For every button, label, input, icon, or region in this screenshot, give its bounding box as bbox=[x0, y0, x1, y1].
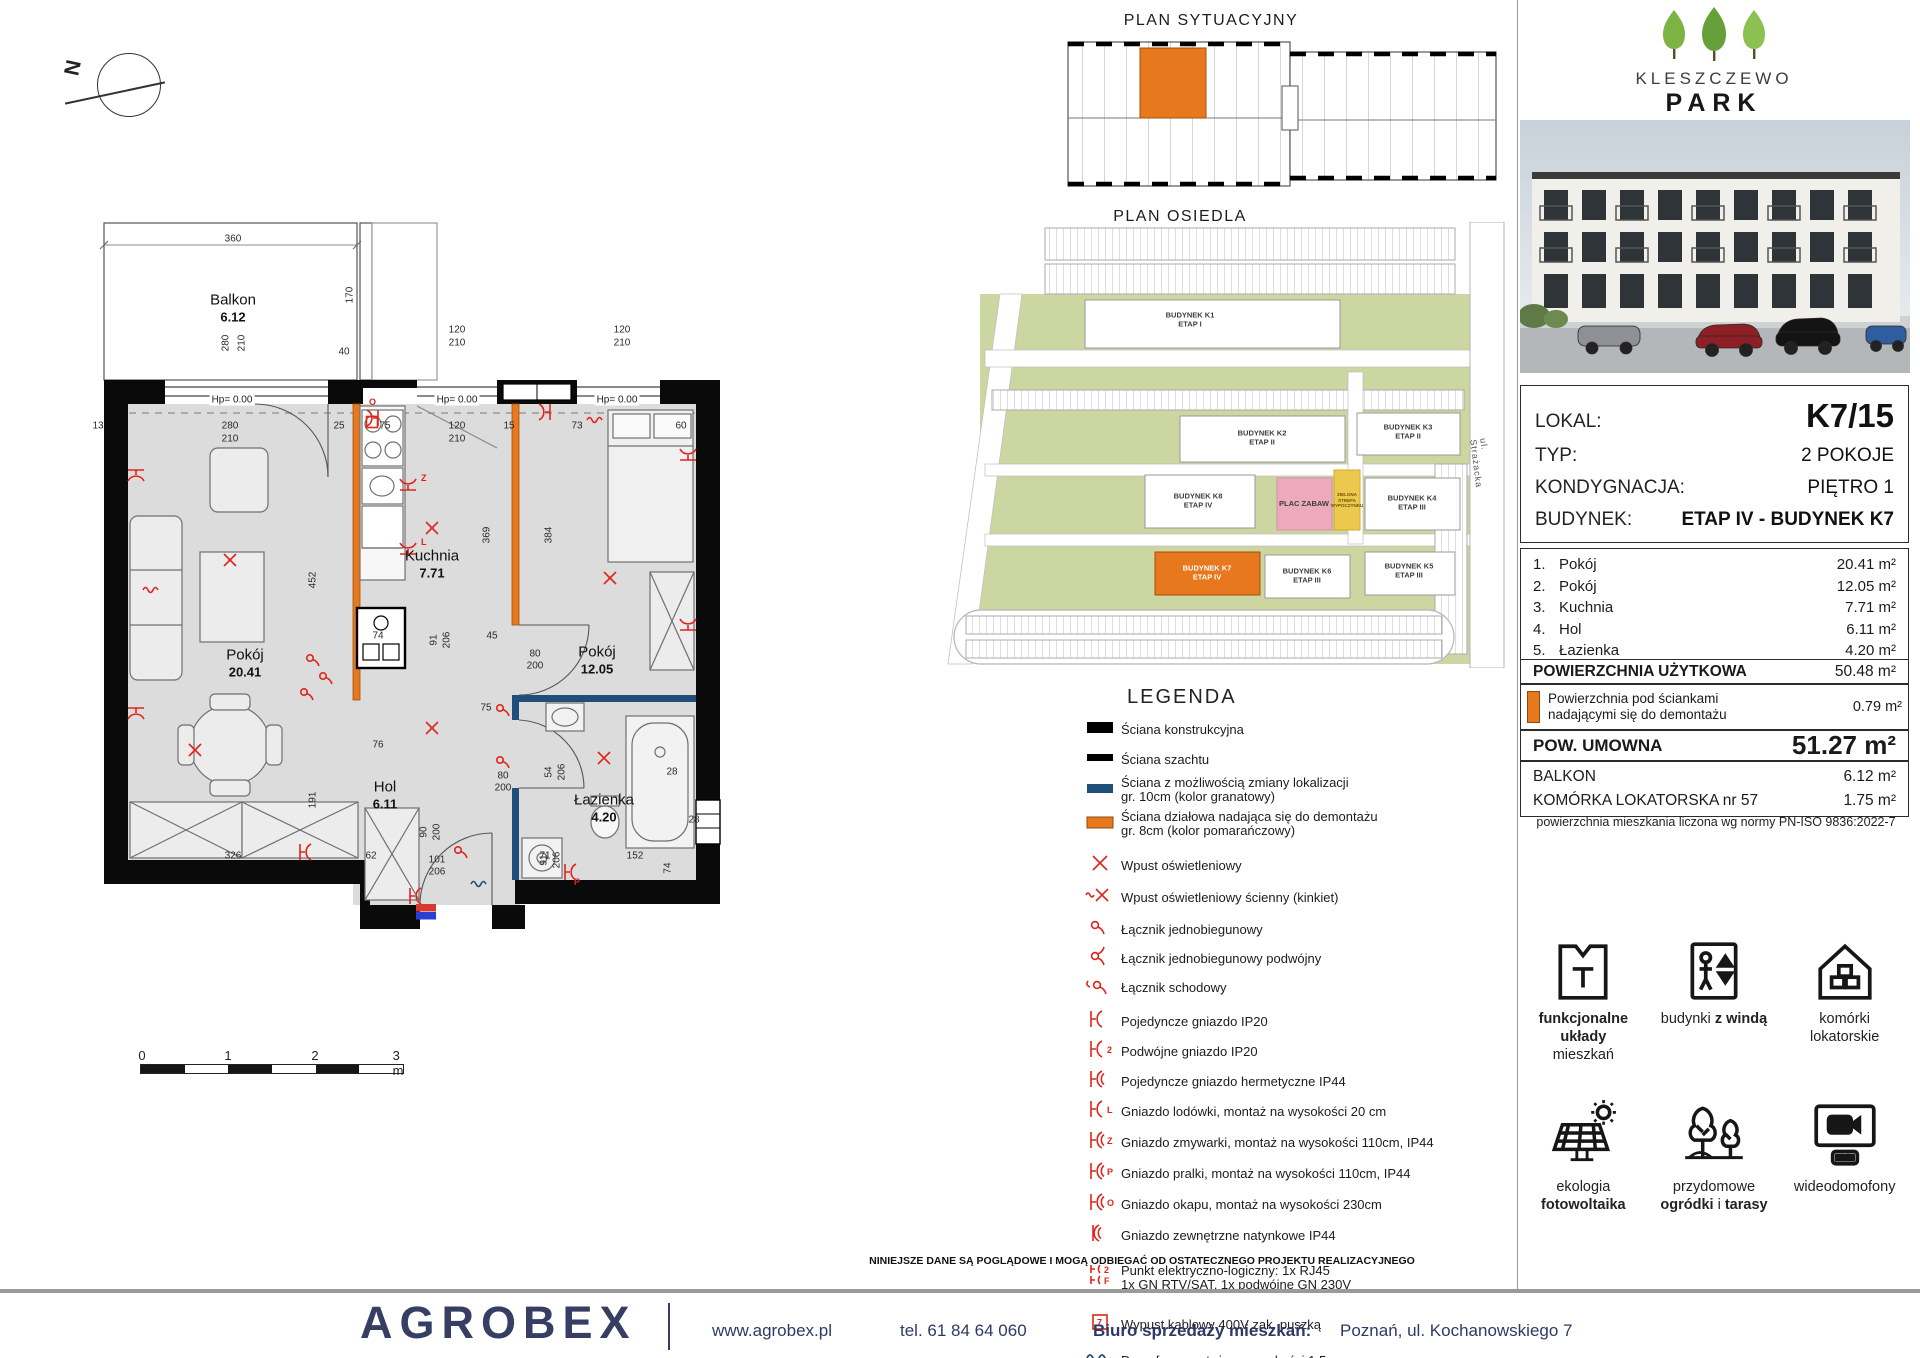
orange-wall-marker-icon bbox=[1527, 691, 1540, 723]
info-label: LOKAL: bbox=[1535, 411, 1602, 433]
info-label: KONDYGNACJA: bbox=[1535, 477, 1685, 499]
feature-icons: funkcjonalne układymieszkań budynki z wi… bbox=[1518, 938, 1910, 1214]
svg-text:L: L bbox=[1107, 1105, 1113, 1115]
legend-item-label: Ściana z możliwością zmiany lokalizacjig… bbox=[1121, 776, 1349, 804]
feature-label: przydomoweogródki i tarasy bbox=[1660, 1178, 1767, 1214]
info-label: BUDYNEK: bbox=[1535, 509, 1632, 531]
layout-icon bbox=[1550, 938, 1616, 1004]
svg-text:O: O bbox=[369, 397, 376, 407]
svg-text:Z: Z bbox=[1107, 1136, 1113, 1146]
sock-legend-icon bbox=[1085, 1009, 1121, 1034]
brand-logo: KLESZCZEWO PARK bbox=[1518, 6, 1910, 118]
scale-0: 0 bbox=[138, 1048, 145, 1063]
svg-text:P: P bbox=[574, 877, 580, 887]
footer-divider-line bbox=[0, 1289, 1920, 1293]
demountable-area-value: 0.79 m² bbox=[1853, 699, 1902, 715]
feature-elevator: budynki z windą bbox=[1649, 938, 1780, 1064]
floorplan-sheet: N bbox=[0, 0, 1920, 1358]
feature-label: komórkilokatorskie bbox=[1810, 1010, 1879, 1046]
leisure-zone bbox=[1334, 470, 1360, 530]
elevator-icon bbox=[1681, 938, 1747, 1004]
logo-trees-icon bbox=[1654, 6, 1774, 62]
wallA-legend-icon bbox=[1085, 717, 1121, 742]
legend-item-label: Pojedyncze gniazdo hermetyczne IP44 bbox=[1121, 1075, 1346, 1089]
legend-item: Ściana szachtu bbox=[1085, 747, 1505, 772]
videophone-icon bbox=[1808, 1098, 1882, 1172]
sockH-legend-icon: Z bbox=[1085, 1130, 1121, 1155]
solar-icon bbox=[1546, 1098, 1620, 1172]
highlighted-unit bbox=[1140, 48, 1206, 118]
storage-label: KOMÓRKA LOKATORSKA nr 57 bbox=[1533, 789, 1758, 813]
room-row: 4.Hol6.11 m² bbox=[1533, 619, 1896, 641]
extras-table: BALKON 6.12 m² KOMÓRKA LOKATORSKA nr 57 … bbox=[1520, 761, 1909, 817]
room-row: 3.Kuchnia7.71 m² bbox=[1533, 597, 1896, 619]
feature-solar: ekologiafotowoltaika bbox=[1518, 1098, 1649, 1214]
info-value: PIĘTRO 1 bbox=[1807, 477, 1894, 499]
storage-icon bbox=[1812, 938, 1878, 1004]
unit-info-row: LOKAL:K7/15 bbox=[1535, 397, 1894, 435]
legend-item: Łącznik jednobiegunowy podwójny bbox=[1085, 946, 1505, 971]
svg-text:F: F bbox=[1104, 1276, 1110, 1286]
compass-north-label: N bbox=[60, 58, 87, 78]
scale-bar-strip bbox=[140, 1064, 404, 1074]
footer-vertical-divider bbox=[668, 1303, 670, 1350]
balcony-label: BALKON bbox=[1533, 765, 1596, 789]
disclaimer-text: NINIEJSZE DANE SĄ POGLĄDOWE I MOGĄ ODBIE… bbox=[852, 1255, 1432, 1267]
estate-plan-drawing bbox=[930, 222, 1545, 668]
legend-item-label: Gniazdo zmywarki, montaż na wysokości 11… bbox=[1121, 1136, 1434, 1150]
sw2-legend-icon bbox=[1085, 946, 1121, 971]
legend-item: Wpust oświetleniowy ścienny (kinkiet) bbox=[1085, 885, 1505, 910]
legend-item: Ściana z możliwością zmiany lokalizacjig… bbox=[1085, 776, 1505, 804]
legend-item: Wpust oświetleniowy bbox=[1085, 853, 1505, 878]
usable-area-row: POWIERZCHNIA UŻYTKOWA 50.48 m² bbox=[1520, 659, 1909, 684]
wallB-legend-icon bbox=[1085, 747, 1121, 772]
legend-item-label: Gniazdo okapu, montaż na wysokości 230cm bbox=[1121, 1198, 1382, 1212]
feature-label: budynki z windą bbox=[1661, 1010, 1767, 1028]
storage-value: 1.75 m² bbox=[1843, 789, 1896, 813]
feature-layouts: funkcjonalne układymieszkań bbox=[1518, 938, 1649, 1064]
legend-item: Pojedyncze gniazdo IP20 bbox=[1085, 1009, 1505, 1034]
legend-item-label: Domofon, montaż na wysokości 1,5m bbox=[1121, 1354, 1337, 1358]
legend-item-label: Ściana szachtu bbox=[1121, 753, 1209, 767]
xwall-legend-icon bbox=[1085, 885, 1121, 910]
building-photo bbox=[1520, 120, 1910, 373]
svg-text:L: L bbox=[421, 537, 427, 547]
balcony-outline bbox=[104, 223, 437, 380]
scale-bar-labels: 0 1 2 3 m bbox=[140, 1048, 404, 1064]
sockH-legend-icon bbox=[1085, 1069, 1121, 1094]
playground-area bbox=[1277, 478, 1332, 530]
demountable-area-label: Powierzchnia pod ściankami nadającymi si… bbox=[1548, 691, 1853, 723]
sock-legend-icon: 2 bbox=[1085, 1039, 1121, 1064]
demountable-area-row: Powierzchnia pod ściankami nadającymi si… bbox=[1520, 684, 1909, 730]
legend-item-label: Podwójne gniazdo IP20 bbox=[1121, 1045, 1258, 1059]
legend-item: Gniazdo zewnętrzne natynkowe IP44 bbox=[1085, 1223, 1505, 1248]
legend-item: ZGniazdo zmywarki, montaż na wysokości 1… bbox=[1085, 1130, 1505, 1155]
svg-text:Z: Z bbox=[421, 473, 427, 483]
legend-item-label: Ściana działowa nadająca się do demontaż… bbox=[1121, 810, 1378, 838]
legend-item-label: Łącznik jednobiegunowy podwójny bbox=[1121, 952, 1321, 966]
contract-area-row: POW. UMOWNA 51.27 m² bbox=[1520, 730, 1909, 761]
usable-area-value: 50.48 m² bbox=[1835, 663, 1896, 681]
legend-item: Pojedyncze gniazdo hermetyczne IP44 bbox=[1085, 1069, 1505, 1094]
sock-legend-icon: L bbox=[1085, 1099, 1121, 1124]
scale-1: 1 bbox=[224, 1048, 231, 1063]
room-area-table: 1.Pokój20.41 m²2.Pokój12.05 m²3.Kuchnia7… bbox=[1520, 548, 1909, 668]
info-value: K7/15 bbox=[1806, 397, 1894, 435]
contract-area-label: POW. UMOWNA bbox=[1533, 736, 1662, 756]
garden-icon bbox=[1677, 1098, 1751, 1172]
legend-item: Ściana działowa nadająca się do demontaż… bbox=[1085, 810, 1505, 838]
legend-item: LGniazdo lodówki, montaż na wysokości 20… bbox=[1085, 1099, 1505, 1124]
unit-info-row: TYP:2 POKOJE bbox=[1535, 445, 1894, 467]
legend-title: LEGENDA bbox=[1127, 686, 1505, 709]
info-value: 2 POKOJE bbox=[1801, 445, 1894, 467]
svg-text:2: 2 bbox=[1107, 1045, 1112, 1055]
usable-area-label: POWIERZCHNIA UŻYTKOWA bbox=[1533, 663, 1747, 681]
footer-office-value: Poznań, ul. Kochanowskiego 7 bbox=[1340, 1321, 1573, 1341]
legend-item-label: Wpust oświetleniowy ścienny (kinkiet) bbox=[1121, 891, 1338, 905]
legend-item-label: Ściana konstrukcyjna bbox=[1121, 723, 1244, 737]
footer-website[interactable]: www.agrobex.pl bbox=[712, 1321, 832, 1341]
scale-bar: 0 1 2 3 m bbox=[140, 1048, 404, 1074]
legend-item-label: Łącznik jednobiegunowy bbox=[1121, 923, 1263, 937]
footer-office-label: Biuro sprzedaży mieszkań: bbox=[1093, 1321, 1311, 1341]
legend-item: Domofon, montaż na wysokości 1,5m bbox=[1085, 1348, 1505, 1358]
legend-item-label: Gniazdo lodówki, montaż na wysokości 20 … bbox=[1121, 1105, 1386, 1119]
logo-sub: PARK bbox=[1518, 89, 1910, 118]
room-row: 2.Pokój12.05 m² bbox=[1533, 576, 1896, 598]
feature-videophone: wideodomofony bbox=[1779, 1098, 1910, 1214]
legend-item: Łącznik schodowy bbox=[1085, 975, 1505, 1000]
footer-phone[interactable]: tel. 61 84 64 060 bbox=[900, 1321, 1027, 1341]
feature-garden: przydomoweogródki i tarasy bbox=[1649, 1098, 1780, 1214]
legend-item: Łącznik jednobiegunowy bbox=[1085, 917, 1505, 942]
legend-item: PGniazdo pralki, montaż na wysokości 110… bbox=[1085, 1161, 1505, 1186]
info-value: ETAP IV - BUDYNEK K7 bbox=[1681, 509, 1894, 531]
wallN-legend-icon bbox=[1085, 778, 1121, 803]
sw1-legend-icon bbox=[1085, 917, 1121, 942]
sockH-legend-icon: P bbox=[1085, 1161, 1121, 1186]
legend-item-label: Łącznik schodowy bbox=[1121, 981, 1227, 995]
legend-item-label: Gniazdo pralki, montaż na wysokości 110c… bbox=[1121, 1167, 1411, 1181]
feature-label: funkcjonalne układymieszkań bbox=[1518, 1010, 1649, 1064]
contract-area-value: 51.27 m² bbox=[1792, 730, 1896, 761]
sockK-legend-icon bbox=[1085, 1223, 1121, 1248]
feature-label: ekologiafotowoltaika bbox=[1541, 1178, 1626, 1214]
domo-legend-icon bbox=[1085, 1348, 1121, 1358]
scale-2: 2 bbox=[311, 1048, 318, 1063]
legend-item: 2Podwójne gniazdo IP20 bbox=[1085, 1039, 1505, 1064]
legend-item: 2FPunkt elektryczno-logiczny: 1x RJ451x … bbox=[1085, 1264, 1505, 1292]
unit-info-row: BUDYNEK:ETAP IV - BUDYNEK K7 bbox=[1535, 509, 1894, 531]
unit-info-row: KONDYGNACJA:PIĘTRO 1 bbox=[1535, 477, 1894, 499]
svg-text:O: O bbox=[1107, 1198, 1114, 1208]
elog-legend-icon: 2F bbox=[1085, 1265, 1121, 1292]
svg-text:P: P bbox=[1107, 1167, 1113, 1177]
feature-label: wideodomofony bbox=[1794, 1178, 1896, 1196]
situational-plan-drawing bbox=[1060, 8, 1520, 203]
sockH-legend-icon: O bbox=[1085, 1192, 1121, 1217]
agrobex-logo: AGROBEX bbox=[360, 1297, 637, 1349]
legend-item: Ściana konstrukcyjna bbox=[1085, 717, 1505, 742]
legend-item-label: Punkt elektryczno-logiczny: 1x RJ451x GN… bbox=[1121, 1264, 1351, 1292]
x-legend-icon bbox=[1085, 853, 1121, 878]
legend-item-label: Pojedyncze gniazdo IP20 bbox=[1121, 1015, 1268, 1029]
feature-storage: komórkilokatorskie bbox=[1779, 938, 1910, 1064]
logo-name: KLESZCZEWO bbox=[1518, 69, 1910, 89]
scale-3: 3 m bbox=[393, 1048, 404, 1078]
balcony-value: 6.12 m² bbox=[1843, 765, 1896, 789]
unit-info-table: LOKAL:K7/15TYP:2 POKOJEKONDYGNACJA:PIĘTR… bbox=[1520, 385, 1909, 543]
floor-plan-drawing: ZLOP bbox=[60, 160, 760, 1110]
area-norm-note: powierzchnia mieszkania liczona wg normy… bbox=[1520, 815, 1912, 829]
building-k7-highlight bbox=[1155, 552, 1260, 595]
legend-item-label: Wpust oświetleniowy bbox=[1121, 859, 1242, 873]
room-row: 1.Pokój20.41 m² bbox=[1533, 554, 1896, 576]
legend-item-label: Gniazdo zewnętrzne natynkowe IP44 bbox=[1121, 1229, 1336, 1243]
info-label: TYP: bbox=[1535, 445, 1577, 467]
wallO-legend-icon bbox=[1085, 812, 1121, 837]
sw3-legend-icon bbox=[1085, 975, 1121, 1000]
legend-item: OGniazdo okapu, montaż na wysokości 230c… bbox=[1085, 1192, 1505, 1217]
